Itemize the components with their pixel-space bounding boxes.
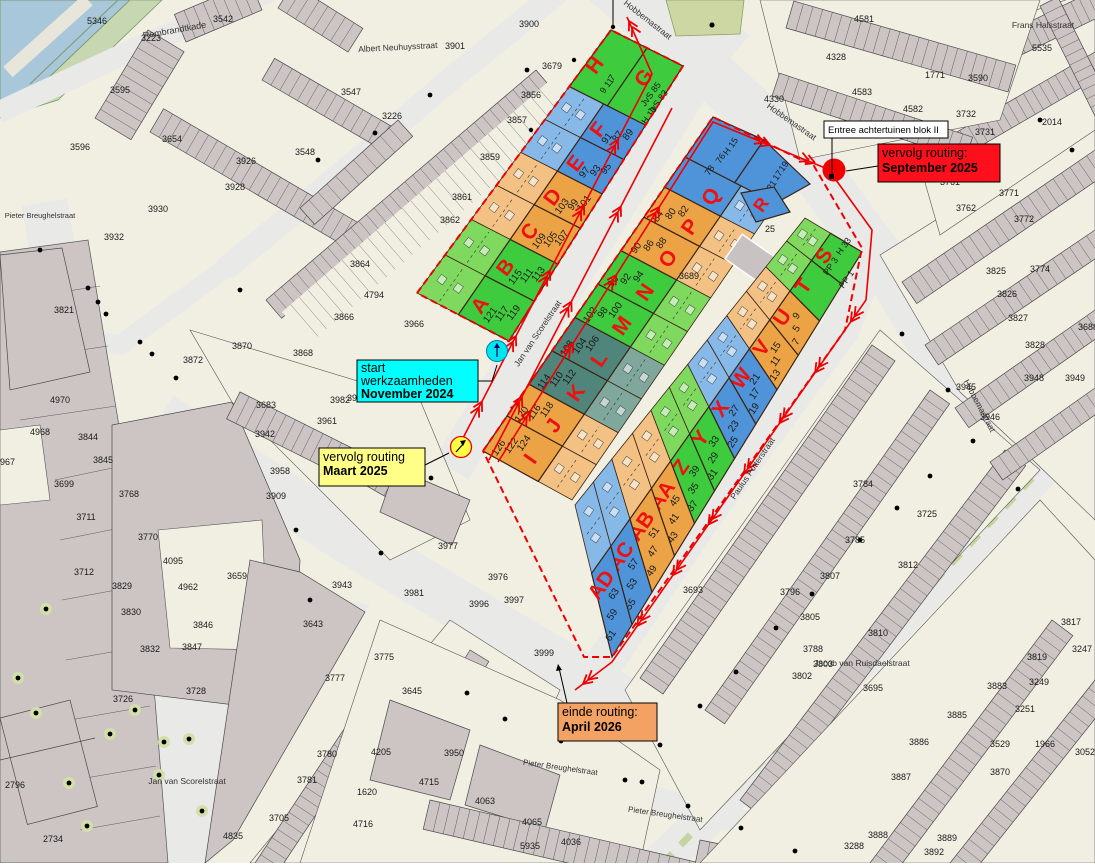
svg-text:3976: 3976 (488, 572, 508, 582)
svg-text:2796: 2796 (5, 780, 25, 790)
svg-text:3726: 3726 (113, 694, 133, 704)
svg-text:1771: 1771 (925, 70, 945, 80)
svg-text:3802: 3802 (792, 671, 812, 681)
svg-text:1966: 1966 (1035, 739, 1055, 749)
svg-text:3805: 3805 (800, 612, 820, 622)
svg-text:start: start (361, 361, 386, 375)
svg-text:3249: 3249 (1029, 677, 1049, 687)
svg-text:vervolg routing: vervolg routing (323, 450, 405, 464)
svg-text:3870: 3870 (990, 767, 1010, 777)
svg-text:4715: 4715 (419, 777, 439, 787)
svg-text:3807: 3807 (820, 571, 840, 581)
svg-text:4583: 4583 (852, 87, 872, 97)
svg-text:3844: 3844 (78, 432, 98, 442)
svg-text:4063: 4063 (475, 796, 495, 806)
svg-text:3711: 3711 (76, 512, 95, 522)
svg-text:3883: 3883 (987, 681, 1007, 691)
svg-text:3886: 3886 (909, 737, 929, 747)
svg-text:3859: 3859 (480, 152, 500, 162)
svg-text:3930: 3930 (148, 204, 168, 214)
svg-text:September 2025: September 2025 (882, 161, 978, 175)
svg-text:3784: 3784 (853, 479, 873, 489)
svg-text:3775: 3775 (374, 652, 394, 662)
svg-text:4970: 4970 (50, 395, 70, 405)
svg-text:3654: 3654 (162, 134, 182, 144)
svg-text:3961: 3961 (317, 416, 337, 426)
svg-text:4582: 4582 (903, 104, 923, 114)
svg-text:3781: 3781 (297, 775, 317, 785)
svg-text:3868: 3868 (293, 348, 313, 358)
svg-text:3846: 3846 (193, 620, 213, 630)
svg-text:4036: 4036 (561, 837, 581, 847)
svg-text:3693: 3693 (683, 585, 703, 595)
svg-text:3845: 3845 (93, 455, 113, 465)
svg-text:3901: 3901 (445, 41, 465, 51)
svg-text:3892: 3892 (924, 847, 944, 857)
svg-text:Frans Halsstraat: Frans Halsstraat (1012, 20, 1075, 30)
svg-text:3812: 3812 (898, 560, 918, 570)
svg-text:April 2026: April 2026 (562, 720, 622, 734)
svg-text:3997: 3997 (504, 595, 524, 605)
svg-text:3645: 3645 (402, 686, 422, 696)
svg-text:1620: 1620 (357, 787, 377, 797)
svg-text:3827: 3827 (1008, 313, 1028, 323)
svg-text:3889: 3889 (937, 833, 957, 843)
svg-text:3774: 3774 (1030, 264, 1050, 274)
svg-text:3966: 3966 (404, 319, 424, 329)
svg-text:5346: 5346 (87, 16, 107, 26)
svg-text:4205: 4205 (371, 747, 391, 757)
svg-text:3688: 3688 (1078, 322, 1095, 332)
svg-text:werkzaamheden: werkzaamheden (360, 374, 453, 388)
svg-text:4968: 4968 (30, 427, 50, 437)
svg-text:2734: 2734 (43, 834, 63, 844)
svg-text:3659: 3659 (227, 571, 247, 581)
svg-text:2014: 2014 (1042, 117, 1062, 127)
svg-text:3950: 3950 (444, 748, 464, 758)
svg-text:3870: 3870 (232, 341, 252, 351)
svg-text:3732: 3732 (956, 109, 976, 119)
svg-text:3928: 3928 (225, 182, 245, 192)
svg-text:3590: 3590 (968, 73, 988, 83)
svg-text:4581: 4581 (854, 14, 874, 24)
svg-text:3999: 3999 (534, 648, 554, 658)
svg-text:November 2024: November 2024 (361, 387, 453, 401)
svg-text:3796: 3796 (780, 587, 800, 597)
svg-text:3828: 3828 (1025, 340, 1045, 350)
svg-text:3847: 3847 (182, 642, 202, 652)
svg-text:3826: 3826 (997, 289, 1017, 299)
svg-text:3949: 3949 (1065, 373, 1085, 383)
svg-text:4065: 4065 (522, 817, 542, 827)
svg-text:3887: 3887 (891, 772, 911, 782)
svg-text:3762: 3762 (956, 203, 976, 213)
svg-text:3731: 3731 (975, 127, 995, 137)
svg-text:3825: 3825 (986, 266, 1006, 276)
svg-text:4962: 4962 (178, 582, 198, 592)
svg-text:3885: 3885 (947, 710, 967, 720)
svg-text:3542: 3542 (213, 14, 233, 24)
svg-text:3785: 3785 (845, 535, 865, 545)
svg-text:3725: 3725 (917, 509, 937, 519)
svg-text:3768: 3768 (119, 489, 139, 499)
svg-text:3547: 3547 (341, 87, 361, 97)
svg-text:3643: 3643 (303, 619, 323, 629)
svg-text:3829: 3829 (112, 581, 132, 591)
svg-text:3728: 3728 (186, 686, 206, 696)
svg-text:3251: 3251 (1015, 704, 1035, 714)
svg-text:3679: 3679 (542, 61, 562, 71)
svg-text:3996: 3996 (469, 599, 489, 609)
svg-text:5935: 5935 (520, 841, 540, 851)
svg-text:3695: 3695 (863, 683, 883, 693)
svg-text:4328: 4328 (826, 52, 846, 62)
svg-text:Pieter Breughelstraat: Pieter Breughelstraat (5, 211, 76, 220)
svg-text:3780: 3780 (317, 749, 337, 759)
svg-text:3810: 3810 (868, 628, 888, 638)
svg-text:3712: 3712 (74, 567, 94, 577)
svg-text:3861: 3861 (452, 192, 472, 202)
svg-text:5535: 5535 (1032, 43, 1052, 53)
svg-text:3932: 3932 (104, 232, 124, 242)
svg-text:3982: 3982 (330, 395, 350, 405)
svg-text:3771: 3771 (999, 188, 1019, 198)
svg-text:3595: 3595 (110, 85, 130, 95)
svg-text:Entree achtertuinen blok II: Entree achtertuinen blok II (828, 125, 939, 136)
svg-text:4835: 4835 (223, 831, 243, 841)
svg-text:4095: 4095 (163, 556, 183, 566)
svg-text:3596: 3596 (70, 142, 90, 152)
svg-text:3926: 3926 (236, 156, 256, 166)
svg-text:3977: 3977 (438, 541, 458, 551)
svg-text:3689: 3689 (679, 271, 699, 281)
svg-text:3909: 3909 (266, 491, 286, 501)
svg-text:25: 25 (765, 224, 775, 234)
svg-text:3777: 3777 (325, 673, 345, 683)
svg-text:Jan van Scorelstraat: Jan van Scorelstraat (148, 776, 226, 786)
svg-text:Jacob van Ruisdaelstraat: Jacob van Ruisdaelstraat (814, 658, 910, 668)
svg-text:3247: 3247 (1072, 644, 1092, 654)
svg-text:Maart 2025: Maart 2025 (323, 464, 388, 478)
svg-text:3770: 3770 (138, 532, 158, 542)
svg-text:3288: 3288 (844, 841, 864, 851)
svg-text:3052: 3052 (1075, 747, 1095, 757)
svg-text:3981: 3981 (404, 588, 424, 598)
svg-text:3548: 3548 (295, 147, 315, 157)
svg-text:3832: 3832 (140, 644, 160, 654)
svg-text:3529: 3529 (990, 739, 1010, 749)
svg-text:3821: 3821 (54, 305, 74, 315)
svg-text:3817: 3817 (1061, 617, 1081, 627)
svg-text:3958: 3958 (270, 466, 290, 476)
svg-text:4794: 4794 (364, 290, 384, 300)
svg-text:einde routing:: einde routing: (562, 705, 638, 719)
svg-text:3830: 3830 (121, 607, 141, 617)
svg-text:3683: 3683 (256, 400, 276, 410)
svg-text:3862: 3862 (440, 215, 460, 225)
svg-text:3900: 3900 (519, 19, 539, 29)
svg-text:3864: 3864 (350, 259, 370, 269)
svg-text:3888: 3888 (868, 830, 888, 840)
svg-text:3942: 3942 (255, 429, 275, 439)
svg-text:3857: 3857 (507, 115, 527, 125)
svg-text:4716: 4716 (353, 819, 373, 829)
svg-text:3866: 3866 (334, 312, 354, 322)
svg-text:3699: 3699 (54, 479, 74, 489)
svg-text:3948: 3948 (1024, 373, 1044, 383)
svg-text:3705: 3705 (269, 813, 289, 823)
svg-text:3943: 3943 (332, 580, 352, 590)
svg-text:3772: 3772 (1014, 214, 1034, 224)
svg-text:vervolg routing:: vervolg routing: (882, 146, 967, 160)
svg-text:4967: 4967 (0, 457, 15, 467)
svg-text:3788: 3788 (803, 644, 823, 654)
svg-text:3819: 3819 (1027, 652, 1047, 662)
svg-text:3872: 3872 (183, 355, 203, 365)
svg-text:3856: 3856 (521, 90, 541, 100)
svg-text:3226: 3226 (382, 111, 402, 121)
